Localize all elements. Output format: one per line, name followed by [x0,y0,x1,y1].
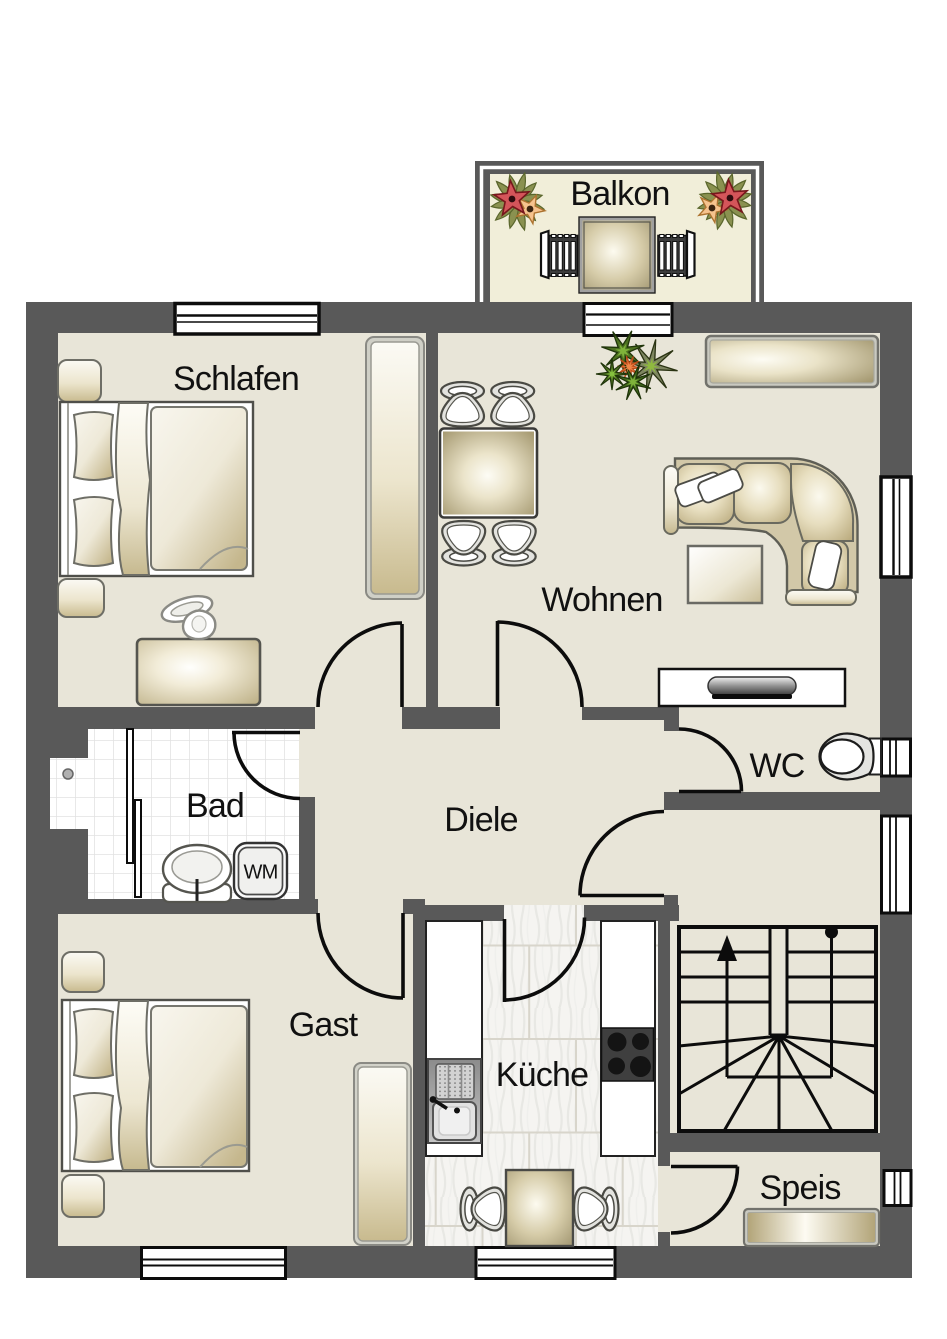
svg-text:WC: WC [749,747,804,785]
svg-text:Speis: Speis [759,1169,840,1207]
svg-text:Bad: Bad [186,787,244,825]
svg-text:Gast: Gast [289,1006,359,1044]
svg-text:Schlafen: Schlafen [173,360,299,398]
svg-text:Balkon: Balkon [570,175,669,213]
svg-text:Wohnen: Wohnen [541,581,662,619]
svg-text:WM: WM [244,862,278,884]
svg-text:Küche: Küche [496,1056,588,1094]
svg-text:Diele: Diele [444,801,517,839]
